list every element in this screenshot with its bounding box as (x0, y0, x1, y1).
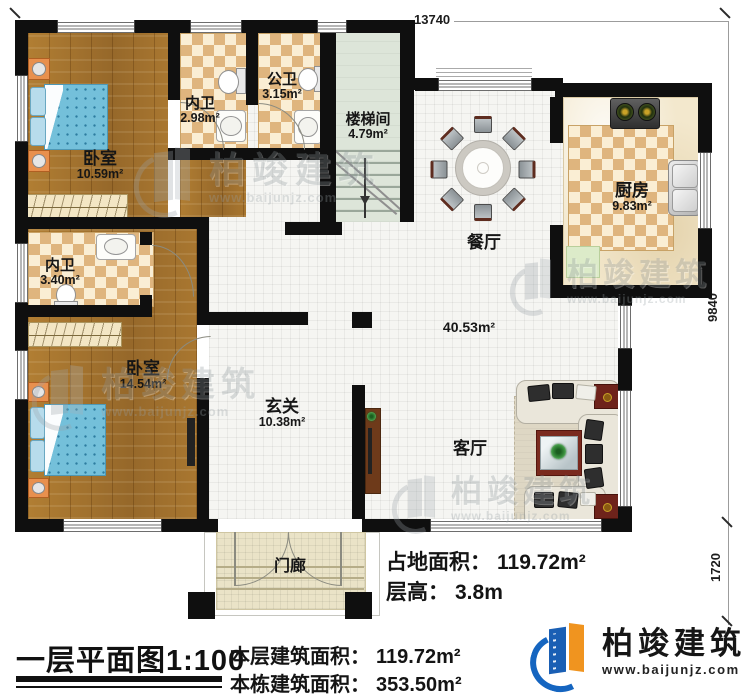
window (63, 519, 162, 532)
room-area: 10.38m² (259, 416, 306, 430)
room-name: 餐厅 (467, 234, 501, 252)
burner-icon (638, 103, 656, 121)
wall (15, 301, 28, 350)
wall (197, 229, 209, 325)
wall (160, 519, 218, 532)
room-area: 9.83m² (612, 200, 652, 214)
room-label-bedroom1: 卧室 10.59m² (77, 150, 124, 182)
dimension-tick (719, 7, 730, 18)
nightstand (28, 150, 50, 172)
brand-name: 柏竣建筑 (602, 628, 746, 659)
window (317, 20, 347, 33)
room-label-living: 客厅 (453, 440, 487, 458)
room-label-foyer: 玄关 10.38m² (259, 398, 306, 430)
sofa-cushion (527, 384, 551, 402)
dining-chair (474, 116, 492, 133)
kitchen-mat (566, 246, 600, 278)
room-label-bath2: 内卫 3.40m² (40, 258, 80, 288)
wall (550, 285, 712, 298)
dimension-top-value: 13740 (410, 12, 454, 27)
room-name: 内卫 (40, 258, 80, 274)
pillow (30, 87, 46, 116)
wall (618, 505, 632, 532)
table-center (477, 162, 489, 174)
bed (44, 404, 106, 476)
room-area: 4.79m² (345, 128, 390, 142)
floor-plan-canvas: 卧室 10.59m² 内卫 2.98m² 公卫 3.15m² 楼梯间 4.79m… (0, 0, 750, 695)
wall (246, 33, 258, 105)
title-underline (16, 676, 222, 682)
room-name: 内卫 (180, 96, 220, 112)
room-area: 14.54m² (120, 378, 167, 392)
sofa-pillow (575, 384, 596, 401)
window (618, 305, 632, 349)
dining-chair (431, 161, 448, 179)
room-label-bath1: 内卫 2.98m² (180, 96, 220, 126)
land-area-label: 占地面积： (386, 551, 491, 574)
wall (168, 33, 180, 100)
wall (362, 519, 430, 532)
wall (240, 20, 317, 33)
room-label-bedroom2: 卧室 14.54m² (120, 360, 167, 392)
porch-step (216, 588, 364, 590)
bed (44, 84, 108, 150)
wall (285, 222, 342, 235)
sink-basin (220, 116, 242, 136)
room-name: 楼梯间 (345, 112, 390, 128)
wall-pier (352, 312, 372, 328)
land-area-stat: 占地面积：119.72m² (386, 546, 586, 576)
room-area: 3.40m² (40, 274, 80, 288)
sink-basin (672, 189, 698, 212)
bedroom-tv (187, 418, 195, 466)
room-name: 厨房 (612, 182, 652, 200)
wardrobe (26, 194, 128, 219)
stair-arrow-head (360, 196, 370, 210)
wall (352, 385, 365, 519)
floor-area-value: 119.72m² (376, 646, 461, 668)
room-area: 2.98m² (180, 112, 220, 126)
open-area-label: 40.53m² (443, 319, 495, 335)
room-name: 卧室 (120, 360, 167, 378)
wall (15, 217, 209, 229)
pillow (30, 407, 45, 439)
porch-column (345, 592, 372, 619)
sofa-cushion (584, 419, 605, 441)
floor-height-stat: 层高：3.8m (386, 576, 503, 606)
land-area-value: 119.72m² (497, 551, 586, 574)
nightstand (28, 58, 50, 80)
title-underline-thin (16, 686, 222, 688)
room-label-stairwell: 楼梯间 4.79m² (345, 112, 390, 142)
room-label-kitchen: 厨房 9.83m² (612, 182, 652, 214)
floor-height-label: 层高： (386, 581, 449, 604)
dimension-right-lower-value: 1720 (708, 549, 723, 586)
sofa-pillow (580, 492, 596, 506)
wall (618, 347, 632, 390)
window (57, 20, 135, 33)
wood-floor-corridor (180, 160, 246, 217)
room-name: 门廊 (274, 558, 306, 575)
room-label-porch: 门廊 (274, 558, 306, 575)
wall (140, 232, 152, 245)
plant-icon (367, 412, 376, 421)
wall (320, 20, 336, 222)
brand-logo: 柏竣建筑 www.baijunjz.com (532, 620, 746, 684)
floor-area-stat: 本层建筑面积：119.72m² (230, 640, 461, 669)
wall (555, 83, 712, 97)
dining-chair (474, 204, 492, 221)
wall (415, 78, 439, 91)
building-area-label: 本栋建筑面积： (230, 674, 370, 695)
nightstand (28, 382, 49, 402)
wall (550, 97, 563, 143)
window-sill (436, 68, 532, 77)
nightstand (28, 478, 49, 498)
floor-area-label: 本层建筑面积： (230, 646, 370, 668)
floor-height-value: 3.8m (455, 581, 503, 604)
room-label-public-bath: 公卫 3.15m² (262, 72, 302, 102)
sofa-cushion (584, 467, 605, 489)
dimension-line-right (728, 21, 729, 527)
burner-icon (616, 103, 634, 121)
room-label-dining: 餐厅 (467, 234, 501, 252)
brand-url: www.baijunjz.com (602, 663, 746, 676)
wall (15, 20, 28, 75)
window (15, 243, 28, 303)
wall (209, 312, 308, 325)
end-table (594, 384, 619, 409)
wall (400, 33, 414, 222)
tv-icon (368, 428, 372, 474)
room-name: 公卫 (262, 72, 302, 88)
sink-basin (104, 238, 128, 255)
wall (197, 378, 209, 519)
dimension-line-right-lower (728, 527, 729, 625)
window (618, 390, 632, 507)
room-name: 客厅 (453, 440, 487, 458)
plan-title: 一层平面图1:100 (16, 637, 245, 679)
wardrobe (28, 322, 122, 347)
window (15, 350, 28, 400)
room-area: 3.15m² (262, 88, 302, 102)
wall (15, 398, 28, 532)
dimension-tick (9, 7, 20, 18)
building-area-stat: 本栋建筑面积：353.50m² (230, 668, 462, 695)
window (190, 20, 242, 33)
pillow (30, 117, 46, 146)
wall (698, 97, 712, 152)
toilet-icon (218, 70, 239, 94)
window (438, 78, 532, 91)
dimension-tick (721, 516, 732, 527)
wall (15, 519, 63, 532)
end-table (594, 494, 619, 519)
sofa-cushion (552, 383, 574, 399)
window (430, 519, 602, 532)
sofa-cushion (534, 492, 554, 508)
window (15, 75, 28, 142)
building-area-value: 353.50m² (376, 674, 462, 695)
wall (133, 20, 190, 33)
sink-basin (672, 164, 698, 188)
stairs (336, 150, 400, 222)
room-name: 卧室 (77, 150, 124, 168)
room-area: 10.59m² (77, 168, 124, 182)
sofa-cushion (557, 491, 579, 509)
wall (28, 305, 152, 317)
window (698, 152, 712, 229)
room-name: 玄关 (259, 398, 306, 416)
plant-icon (551, 444, 566, 459)
dining-chair (519, 161, 536, 179)
wall (618, 298, 632, 305)
sofa-cushion (585, 444, 603, 464)
pillow (30, 440, 45, 472)
brand-logo-icon (532, 620, 594, 684)
porch-column (188, 592, 215, 619)
